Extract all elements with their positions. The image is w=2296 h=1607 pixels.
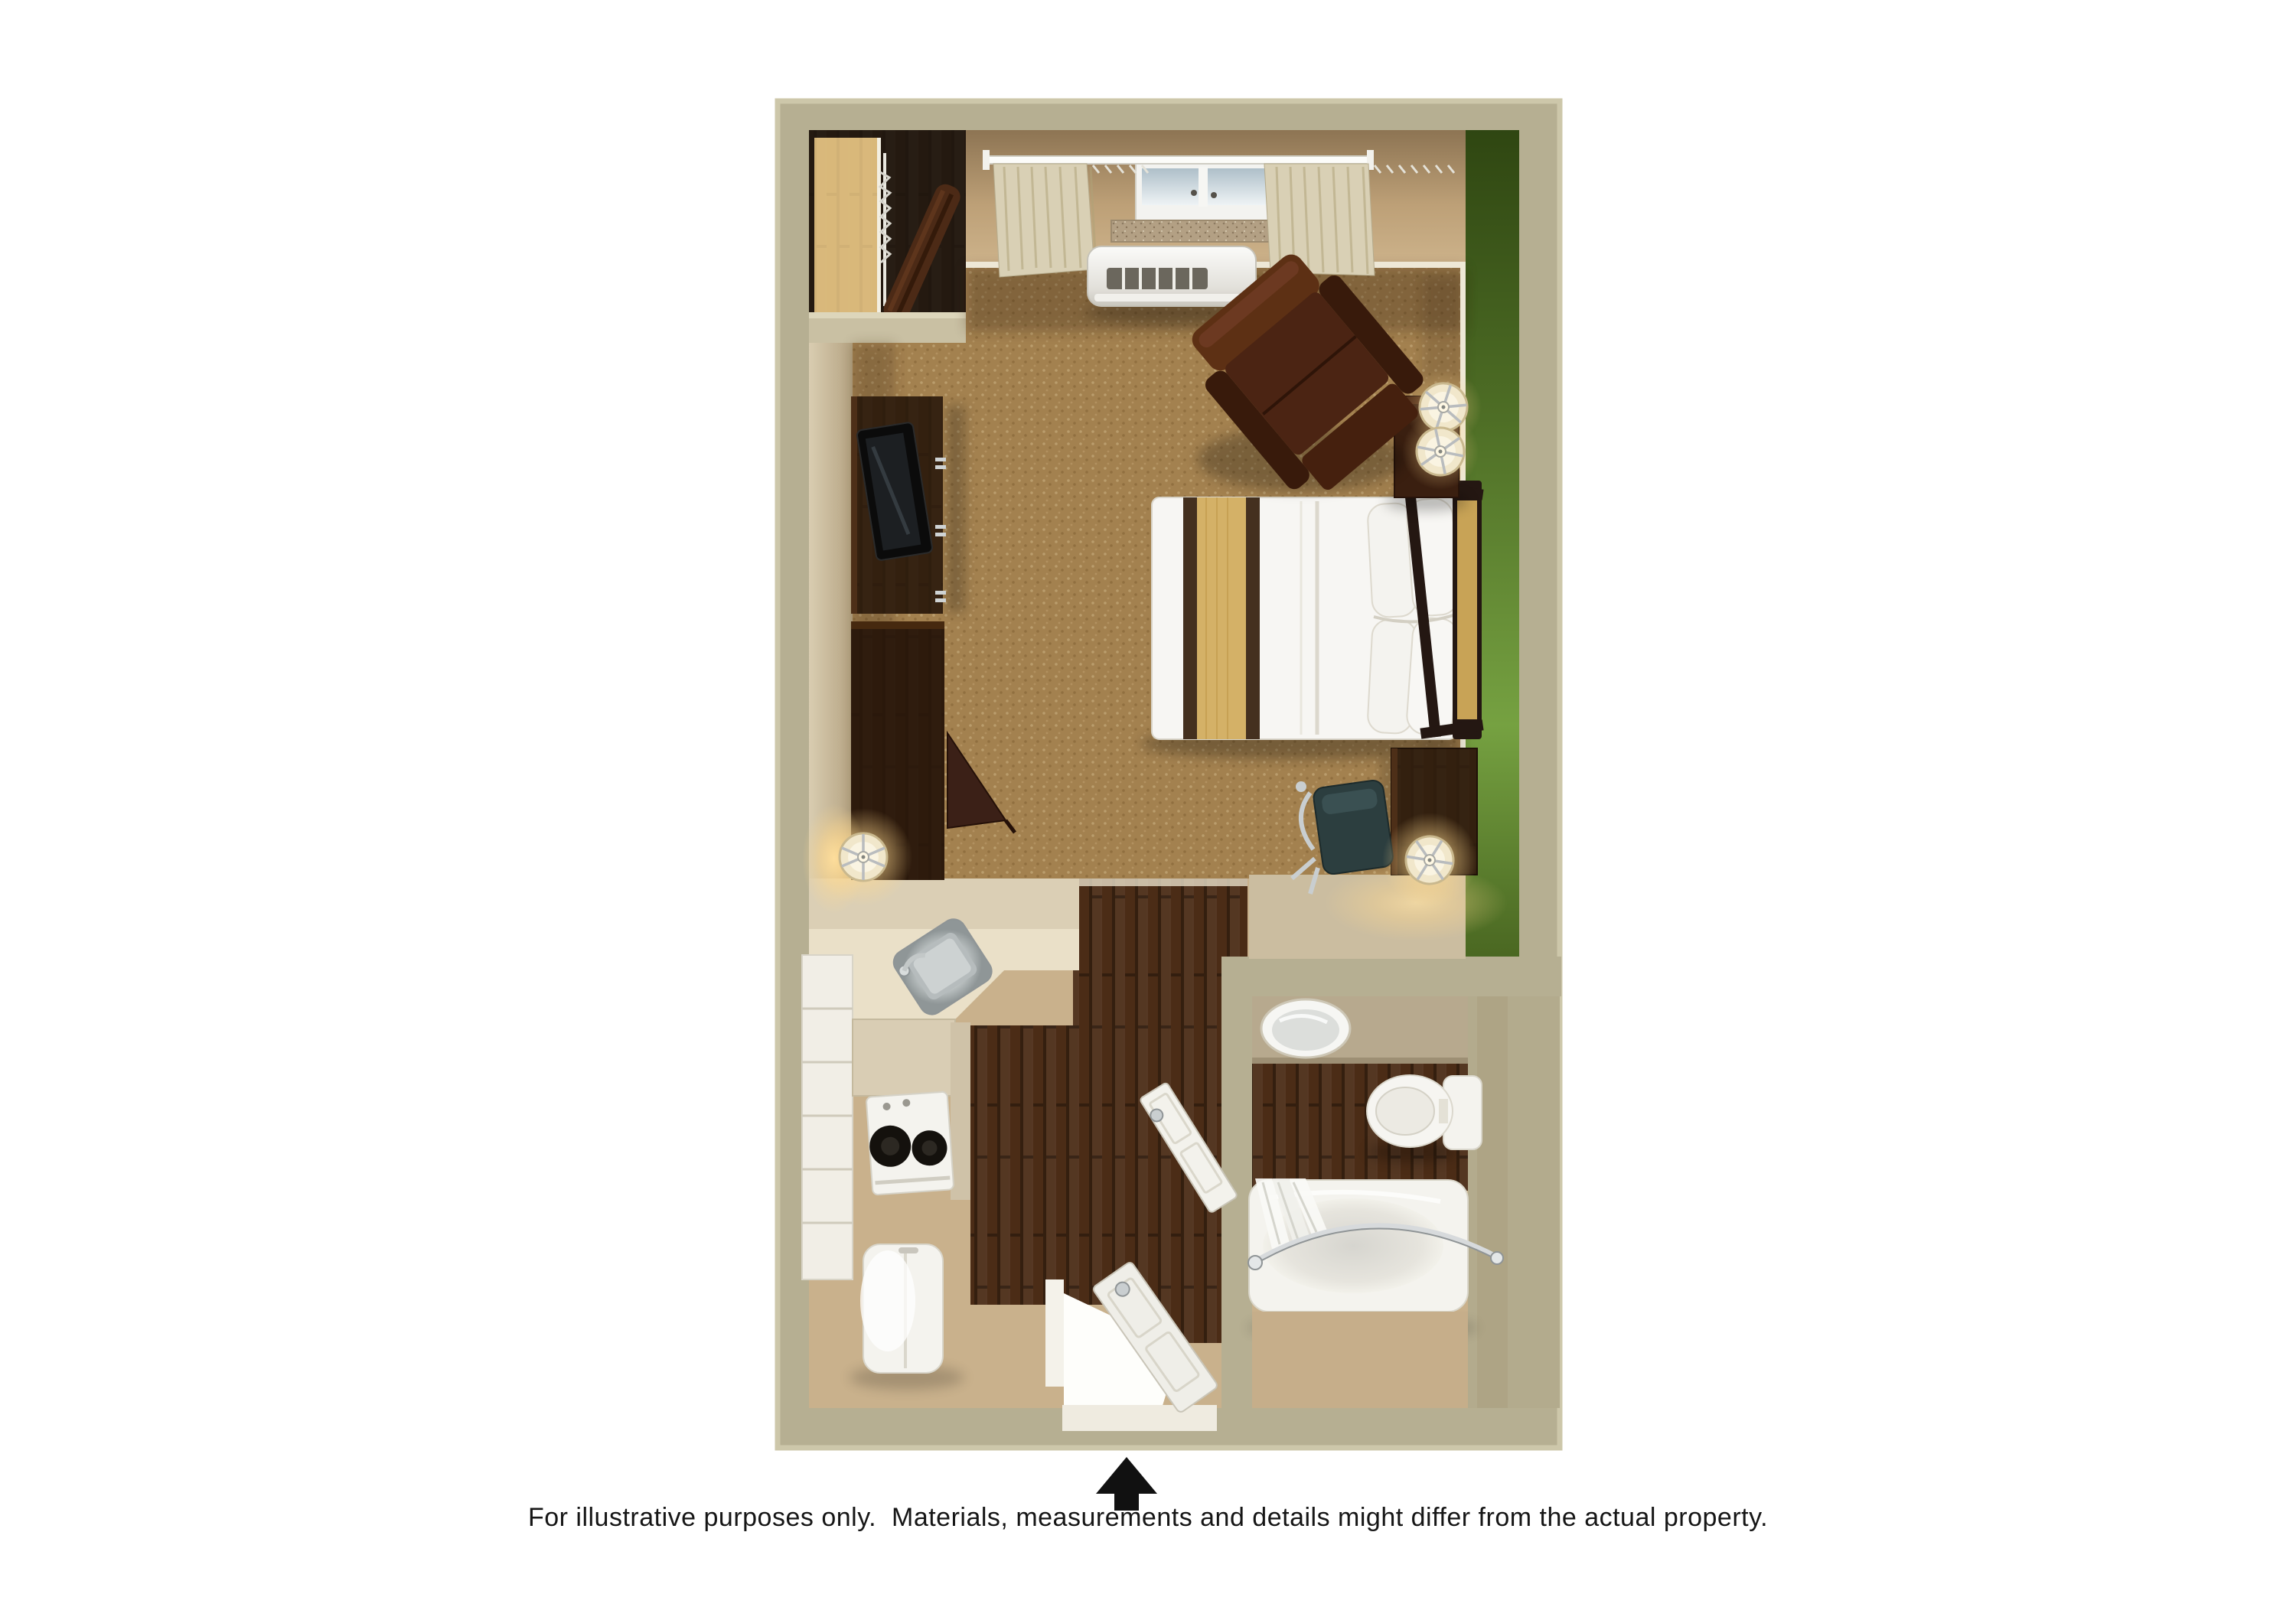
bathroom	[1221, 957, 1561, 1408]
cabinet-side	[951, 1022, 970, 1200]
toilet-seat	[1376, 1087, 1434, 1135]
console-edge	[851, 396, 857, 614]
rod-mount	[1491, 1252, 1503, 1264]
cabinet-column	[802, 955, 853, 1279]
disclaimer-caption: For illustrative purposes only. Material…	[0, 1503, 2296, 1533]
closet-shelf-grain	[814, 138, 879, 312]
vanity-sink	[1261, 999, 1350, 1058]
queen-bed	[1152, 481, 1484, 739]
closet-shelf-edge	[877, 138, 881, 312]
carpet-wood-threshold	[1073, 878, 1247, 886]
toilet	[1367, 1075, 1482, 1149]
tv-console	[851, 396, 946, 614]
base-cabinet	[853, 1019, 955, 1096]
window-latch	[1211, 192, 1217, 198]
ptac-face	[1094, 294, 1249, 302]
console-shadow	[947, 406, 964, 612]
closet	[809, 130, 970, 343]
window-mullion	[1199, 167, 1208, 207]
bathroom-tile-floor	[1252, 1312, 1468, 1408]
bathroom-right-wall-shade	[1477, 996, 1508, 1408]
chair-arm-joint	[1296, 781, 1306, 792]
entry-door-jamb	[1045, 1279, 1064, 1387]
left-wall-face	[809, 343, 853, 878]
vanity-edge	[1252, 1058, 1468, 1064]
closet-stub-wall-top	[809, 312, 970, 318]
headboard-panel	[1457, 500, 1477, 719]
refrigerator	[860, 1244, 943, 1373]
rod-mount	[1248, 1256, 1262, 1270]
entry-threshold	[1062, 1405, 1217, 1431]
table-lamp	[840, 833, 887, 881]
rod-finial	[983, 150, 990, 170]
bed-stripe	[1183, 497, 1197, 739]
floor-plan-page: For illustrative purposes only. Material…	[0, 0, 2296, 1607]
toilet-hinge	[1439, 1099, 1448, 1123]
window-sill	[1111, 220, 1292, 242]
curtain-rod	[987, 156, 1368, 164]
fridge-handle	[899, 1247, 918, 1253]
cabinet-top-edge	[851, 621, 944, 629]
window-latch	[1191, 190, 1197, 196]
floor-plan-image	[0, 0, 2296, 1607]
bathroom-top-wall	[1221, 957, 1561, 996]
bed-runner	[1197, 497, 1246, 739]
stove	[866, 1091, 954, 1195]
bed-stripe	[1246, 497, 1260, 739]
ptac-unit	[1088, 246, 1256, 306]
